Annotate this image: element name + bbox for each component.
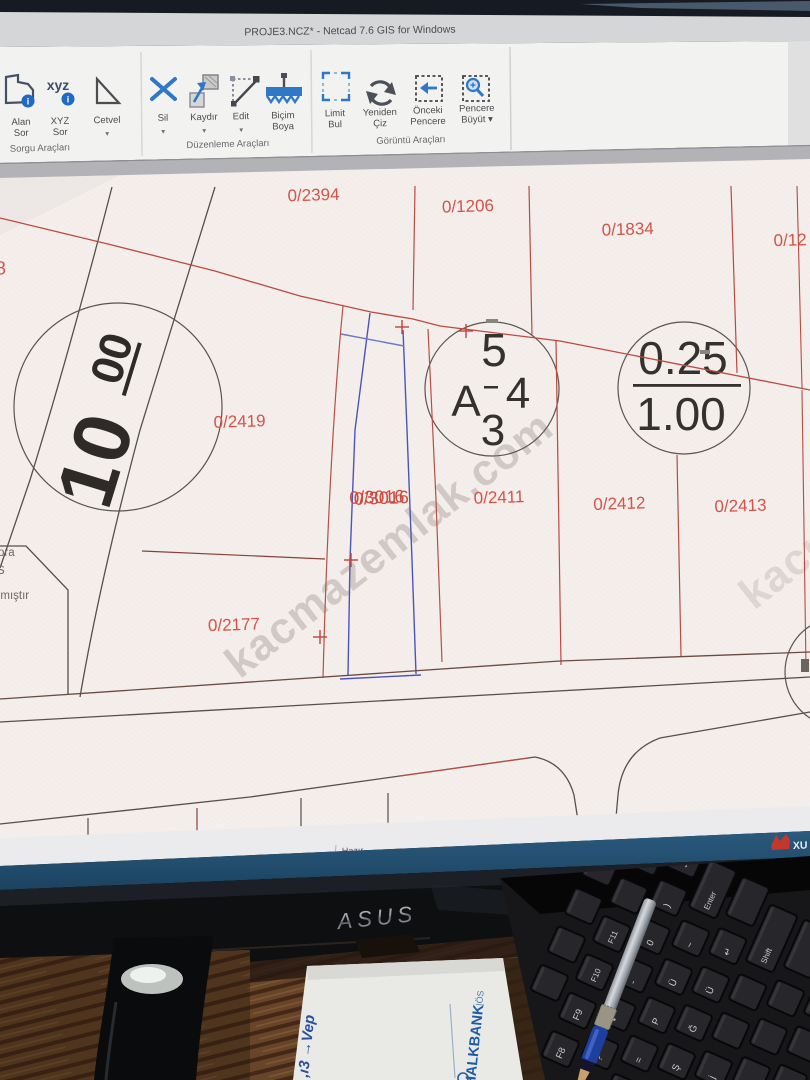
svg-text:Cetvel: Cetvel [93, 115, 120, 127]
svg-text:0/2412: 0/2412 [593, 493, 646, 514]
svg-text:Görüntü Araçları: Görüntü Araçları [376, 134, 445, 147]
svg-text:Sorgu Araçları: Sorgu Araçları [10, 142, 70, 155]
svg-text:0/12: 0/12 [773, 230, 807, 250]
svg-text:▾: ▾ [239, 125, 243, 134]
svg-text:3: 3 [481, 406, 505, 455]
svg-text:Çiz: Çiz [373, 118, 387, 129]
svg-text:nmıştır: nmıştır [0, 590, 29, 602]
svg-text:Limit: Limit [325, 108, 346, 119]
svg-text:|ÖS: |ÖS [474, 990, 486, 1006]
svg-text:0/3016: 0/3016 [353, 487, 409, 509]
svg-text:0/2411: 0/2411 [473, 487, 524, 508]
svg-text:ora: ora [0, 547, 15, 559]
svg-text:0/1206: 0/1206 [442, 196, 495, 217]
svg-text:4: 4 [506, 369, 530, 418]
svg-text:0/2413: 0/2413 [714, 496, 767, 517]
svg-text:0.25: 0.25 [638, 332, 728, 384]
svg-text:xyz: xyz [47, 77, 70, 93]
svg-text:▾: ▾ [105, 129, 109, 138]
svg-text:S: S [0, 565, 5, 577]
svg-text:Alan: Alan [11, 117, 30, 128]
svg-text:Yeniden: Yeniden [363, 107, 397, 119]
svg-text:Boya: Boya [272, 121, 295, 132]
svg-text:XU: XU [793, 839, 808, 852]
svg-text:i: i [27, 97, 30, 107]
svg-text:Kaydır: Kaydır [190, 112, 218, 124]
svg-text:i: i [67, 95, 70, 105]
svg-text:A: A [451, 377, 481, 426]
svg-text:Biçim: Biçim [271, 110, 295, 121]
svg-text:Edit: Edit [233, 111, 250, 122]
svg-text:Pencere: Pencere [459, 103, 495, 115]
svg-text:XYZ: XYZ [51, 116, 70, 127]
svg-text:▾: ▾ [161, 127, 165, 136]
svg-text:Sor: Sor [53, 127, 68, 138]
svg-text:0/1834: 0/1834 [601, 219, 654, 240]
svg-text:Bul: Bul [328, 119, 342, 130]
svg-text:0/2419: 0/2419 [213, 411, 266, 432]
svg-text:0/2177: 0/2177 [208, 615, 261, 636]
svg-text:Pencere: Pencere [410, 116, 446, 128]
svg-text:Sil: Sil [158, 113, 169, 124]
svg-text:Önceki: Önceki [413, 105, 443, 117]
svg-text:Düzenleme Araçları: Düzenleme Araçları [186, 138, 269, 151]
svg-text:8: 8 [0, 258, 6, 279]
svg-text:Büyüt ▾: Büyüt ▾ [461, 114, 493, 126]
svg-text:Sor: Sor [14, 128, 29, 139]
svg-text:▾: ▾ [202, 126, 206, 135]
svg-text:0/2394: 0/2394 [287, 185, 340, 206]
svg-text:1.00: 1.00 [636, 388, 726, 440]
